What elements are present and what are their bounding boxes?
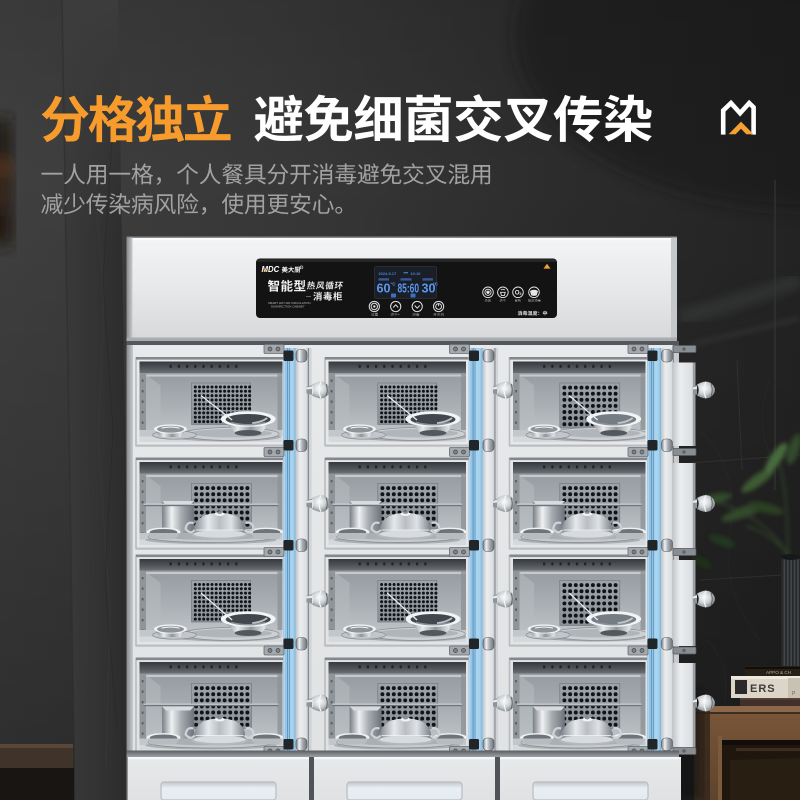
svg-text:60: 60 — [377, 281, 391, 295]
svg-text:ERS: ERS — [750, 683, 776, 695]
svg-text:APPO & CH: APPO & CH — [766, 670, 791, 675]
svg-text:2024-5-17: 2024-5-17 — [379, 271, 397, 276]
svg-text:°C: °C — [433, 282, 439, 287]
svg-text:10:10: 10:10 — [411, 271, 421, 276]
svg-text:°C: °C — [391, 282, 397, 287]
svg-text:3: 3 — [520, 292, 522, 296]
svg-text:MDC: MDC — [262, 265, 280, 274]
svg-text:85:60: 85:60 — [398, 281, 420, 295]
svg-text:DISINFECTION CABINET: DISINFECTION CABINET — [271, 305, 305, 309]
